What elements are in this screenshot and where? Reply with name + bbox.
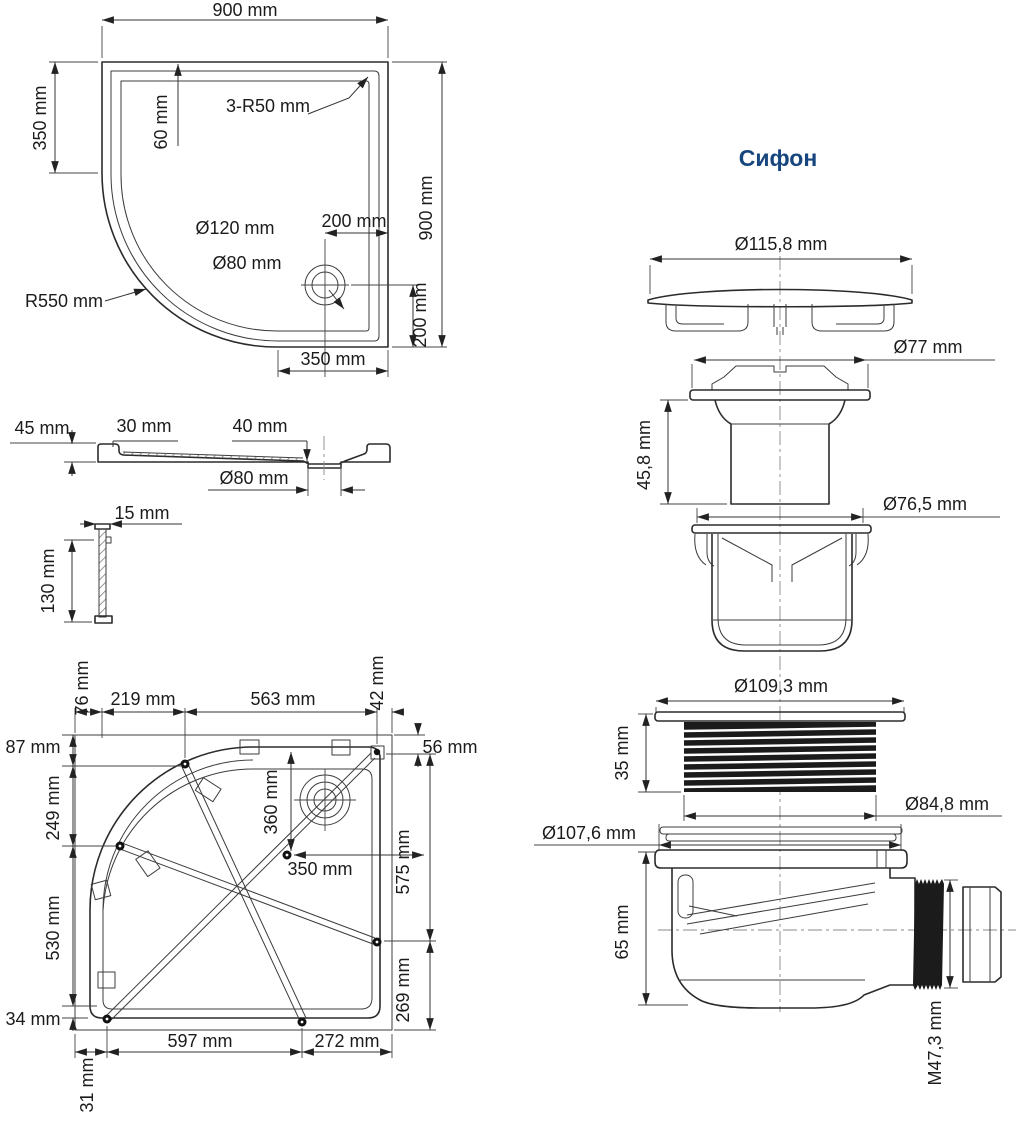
dim-top-width: 900 mm (212, 0, 277, 20)
dim-drain-d80: Ø80 mm (212, 253, 281, 273)
siphon-funnel (660, 400, 845, 504)
dim-gasket-diameter: Ø107,6 mm (542, 823, 636, 843)
siphon-view: Сифон Ø115,8 mm Ø77 mm (534, 145, 1016, 1086)
siphon-cup (692, 508, 1000, 651)
dim-bottom-597: 597 mm (167, 1031, 232, 1051)
dim-left-350: 350 mm (30, 85, 50, 150)
dim-bottom-360: 360 mm (261, 769, 281, 834)
dim-bottom-76: 76 mm (72, 660, 92, 715)
dim-bottom-269: 269 mm (393, 957, 413, 1022)
dim-flange-diameter: Ø77 mm (893, 337, 962, 357)
dim-section-40: 40 mm (232, 416, 287, 436)
dim-drain-d120: Ø120 mm (195, 218, 274, 238)
siphon-cap (648, 259, 912, 335)
tray-top-view: 900 mm 350 mm 60 mm 3-R50 mm 900 mm 200 … (25, 0, 447, 377)
dim-bottom-272: 272 mm (314, 1031, 379, 1051)
dim-right-height: 900 mm (416, 175, 436, 240)
dim-bottom-42: 42 mm (367, 655, 387, 710)
technical-drawing-page: 900 mm 350 mm 60 mm 3-R50 mm 900 mm 200 … (0, 0, 1024, 1123)
siphon-trap-body (638, 850, 1001, 1008)
dim-section-30: 30 mm (116, 416, 171, 436)
bottom-floor-outline (103, 769, 372, 1009)
outlet-nut (963, 887, 1001, 982)
outlet-thread-block (913, 879, 944, 990)
dim-trap-height: 65 mm (612, 904, 632, 959)
siphon-flange (690, 360, 995, 400)
section-dimensions (10, 430, 365, 496)
dim-thread-inner: Ø84,8 mm (905, 794, 989, 814)
dim-corner-r50: 3-R50 mm (226, 96, 310, 116)
dim-thread-height: 35 mm (612, 725, 632, 780)
dim-rim-60: 60 mm (151, 94, 171, 149)
tray-bottom-view: 76 mm 219 mm 563 mm 42 mm 87 mm 249 mm 5… (5, 655, 477, 1112)
dim-bottom-530: 530 mm (43, 895, 63, 960)
drawing-svg: 900 mm 350 mm 60 mm 3-R50 mm 900 mm 200 … (0, 0, 1024, 1123)
dim-bottom-87: 87 mm (5, 737, 60, 757)
dim-bottom-575: 575 mm (393, 829, 413, 894)
panel-detail-view: 15 mm 130 mm (38, 503, 182, 623)
dim-outlet-thread: M47,3 mm (925, 1000, 945, 1085)
dim-bottom-249: 249 mm (43, 775, 63, 840)
panel-top-cap (95, 524, 110, 529)
dim-front-radius: R550 mm (25, 291, 103, 311)
panel-dimensions (64, 524, 182, 622)
dim-bottom-350: 350 mm (300, 349, 365, 369)
drain-bottom-view (294, 769, 356, 831)
dim-panel-15: 15 mm (114, 503, 169, 523)
dim-cup-diameter: Ø76,5 mm (883, 494, 967, 514)
panel-strip (99, 529, 106, 617)
dim-cap-diameter: Ø115,8 mm (735, 234, 828, 254)
dim-section-d80: Ø80 mm (219, 468, 288, 488)
dim-bottom-56: 56 mm (422, 737, 477, 757)
dim-bottom-563: 563 mm (250, 689, 315, 709)
dim-funnel-height: 45,8 mm (634, 420, 654, 490)
thread-bands (684, 722, 876, 792)
siphon-title: Сифон (739, 145, 818, 171)
dim-panel-130: 130 mm (38, 548, 58, 613)
dim-section-45: 45 mm (14, 418, 69, 438)
panel-upper-flange (106, 537, 111, 543)
dim-bottom-34: 34 mm (5, 1009, 60, 1029)
cross-braces (107, 753, 375, 1021)
tray-section-view: 45 mm 30 mm 40 mm Ø80 mm (10, 416, 390, 496)
bottom-rim-arc (103, 760, 253, 910)
dim-thread-outer: Ø109,3 mm (734, 676, 828, 696)
dim-bottom-31: 31 mm (77, 1057, 97, 1112)
dim-drain-x: 200 mm (321, 211, 386, 231)
dim-bottom-219: 219 mm (110, 689, 175, 709)
dim-bottom-350: 350 mm (287, 859, 352, 879)
dim-drain-y: 200 mm (410, 282, 430, 347)
drain-top-view (301, 261, 349, 309)
